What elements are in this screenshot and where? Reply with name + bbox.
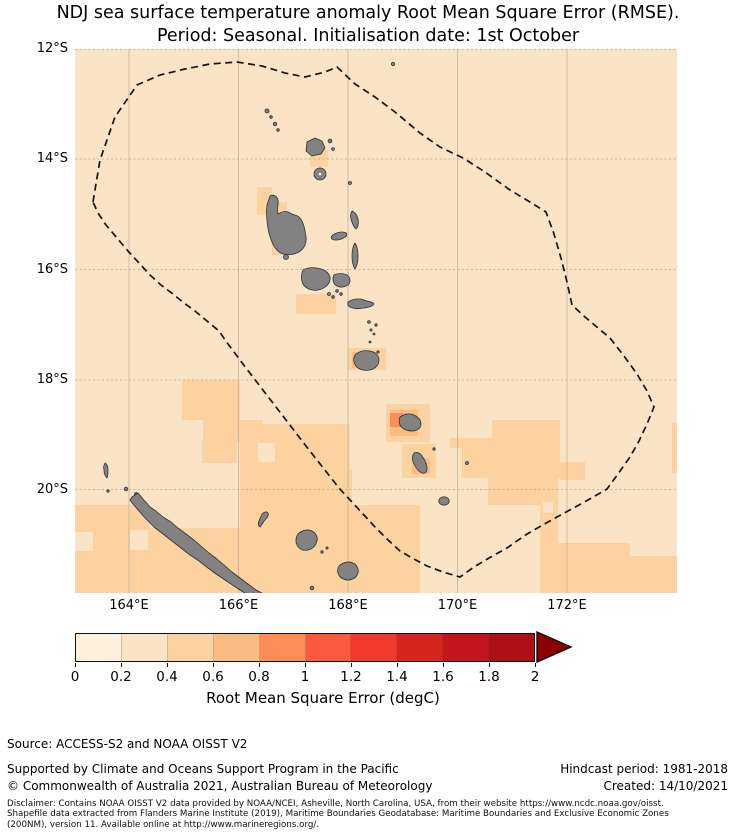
colorbar-tick-label: 1.4 bbox=[386, 669, 407, 685]
island-lifou bbox=[296, 530, 317, 550]
colorbar-tick-mark bbox=[259, 663, 260, 667]
colorbar-segment bbox=[351, 634, 397, 661]
island-efate bbox=[354, 351, 379, 371]
colorbar-label: Root Mean Square Error (degC) bbox=[75, 689, 571, 707]
colorbar-tick-label: 2 bbox=[531, 669, 540, 685]
colorbar-tick-label: 1.8 bbox=[478, 669, 499, 685]
colorbar-tick-label: 1.6 bbox=[432, 669, 453, 685]
colorbar-segment bbox=[260, 634, 306, 661]
disclaimer-line2: Shapefile data extracted from Flanders M… bbox=[7, 809, 733, 819]
island-ambrym bbox=[333, 274, 350, 288]
island-pentecost bbox=[352, 243, 358, 269]
colorbar-tick-mark bbox=[305, 663, 306, 667]
lon-tick-label: 168°E bbox=[313, 598, 383, 613]
disclaimer-text: Disclaimer: Contains NOAA OISST V2 data … bbox=[7, 799, 733, 830]
created-date-text: Created: 14/10/2021 bbox=[603, 779, 728, 793]
colorbar-segment bbox=[306, 634, 352, 661]
island-aneityum bbox=[439, 497, 449, 505]
colorbar-tick-label: 0.6 bbox=[202, 669, 223, 685]
disclaimer-line1: Disclaimer: Contains NOAA OISST V2 data … bbox=[7, 799, 733, 809]
colorbar-tick-label: 0 bbox=[71, 669, 80, 685]
colorbar-segment bbox=[168, 634, 214, 661]
copyright-text: © Commonwealth of Australia 2021, Austra… bbox=[7, 779, 432, 793]
colorbar-segment bbox=[443, 634, 489, 661]
figure: NDJ sea surface temperature anomaly Root… bbox=[0, 0, 736, 839]
colorbar-tick-label: 1 bbox=[301, 669, 310, 685]
colorbar-tick-mark bbox=[535, 663, 536, 667]
island-malekula bbox=[302, 268, 331, 291]
island-aniwa bbox=[433, 448, 435, 450]
colorbar-segment bbox=[76, 634, 122, 661]
colorbar-tick-mark bbox=[75, 663, 76, 667]
colorbar-tick-label: 1.2 bbox=[340, 669, 361, 685]
lat-tick-label: 14°S bbox=[0, 151, 68, 166]
lon-tick-label: 172°E bbox=[532, 598, 602, 613]
lat-tick-label: 12°S bbox=[0, 41, 68, 56]
colorbar-tick-mark bbox=[167, 663, 168, 667]
island-futuna bbox=[466, 462, 469, 465]
colorbar-tick-mark bbox=[397, 663, 398, 667]
lat-tick-label: 16°S bbox=[0, 262, 68, 277]
island-mare bbox=[338, 562, 359, 580]
source-text: Source: ACCESS-S2 and NOAA OISST V2 bbox=[7, 737, 247, 751]
colorbar-extend-arrow bbox=[536, 631, 576, 664]
colorbar-tick-label: 0.2 bbox=[110, 669, 131, 685]
hindcast-period-text: Hindcast period: 1981-2018 bbox=[560, 762, 728, 776]
disclaimer-line3: (200NM), version 11. Available online at… bbox=[7, 820, 733, 830]
lon-tick-label: 166°E bbox=[204, 598, 274, 613]
colorbar-tick-mark bbox=[121, 663, 122, 667]
lat-tick-label: 18°S bbox=[0, 372, 68, 387]
colorbar-tick-mark bbox=[489, 663, 490, 667]
colorbar-tick-mark bbox=[351, 663, 352, 667]
colorbar-tick-mark bbox=[213, 663, 214, 667]
colorbar-tick-label: 0.4 bbox=[156, 669, 177, 685]
supported-text: Supported by Climate and Oceans Support … bbox=[7, 762, 399, 776]
lon-tick-label: 170°E bbox=[423, 598, 493, 613]
lon-tick-label: 164°E bbox=[94, 598, 164, 613]
colorbar-segment bbox=[214, 634, 260, 661]
colorbar-segment bbox=[122, 634, 168, 661]
colorbar-tick-label: 0.8 bbox=[248, 669, 269, 685]
island-malo bbox=[284, 255, 289, 260]
colorbar bbox=[75, 633, 535, 662]
map-plot bbox=[0, 0, 736, 620]
colorbar-segment bbox=[489, 634, 534, 661]
lat-tick-label: 20°S bbox=[0, 482, 68, 497]
colorbar-tick-mark bbox=[443, 663, 444, 667]
colorbar-segment bbox=[397, 634, 443, 661]
